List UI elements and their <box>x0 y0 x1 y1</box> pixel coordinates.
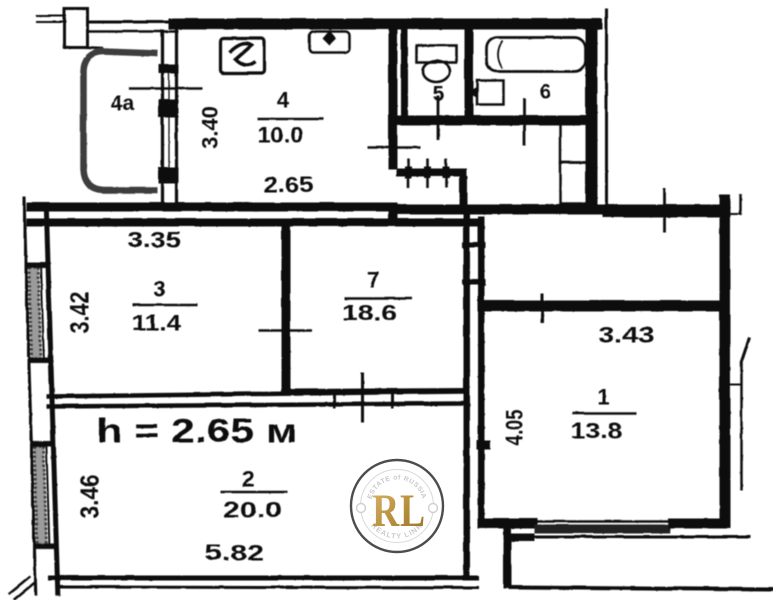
svg-text:2.65: 2.65 <box>263 172 313 197</box>
svg-text:4a: 4a <box>110 92 134 115</box>
svg-text:5.82: 5.82 <box>205 540 264 565</box>
svg-text:h = 2.65 м: h = 2.65 м <box>96 412 297 450</box>
svg-text:20.0: 20.0 <box>223 497 282 522</box>
svg-text:7: 7 <box>367 267 379 292</box>
svg-text:4: 4 <box>277 87 290 112</box>
svg-text:11.4: 11.4 <box>132 310 182 335</box>
svg-text:3.40: 3.40 <box>197 106 222 149</box>
svg-text:3: 3 <box>153 276 165 301</box>
svg-text:3.46: 3.46 <box>74 474 104 518</box>
svg-text:4.05: 4.05 <box>501 409 528 445</box>
svg-text:10.0: 10.0 <box>257 122 303 147</box>
svg-text:3.43: 3.43 <box>598 322 654 347</box>
svg-text:2: 2 <box>242 466 254 491</box>
svg-text:RL: RL <box>372 485 426 537</box>
svg-text:3.42: 3.42 <box>64 291 94 333</box>
svg-text:18.6: 18.6 <box>342 300 397 325</box>
svg-text:1: 1 <box>597 384 609 409</box>
svg-text:6: 6 <box>539 80 551 103</box>
svg-text:13.8: 13.8 <box>570 418 622 443</box>
svg-text:3.35: 3.35 <box>127 227 181 252</box>
